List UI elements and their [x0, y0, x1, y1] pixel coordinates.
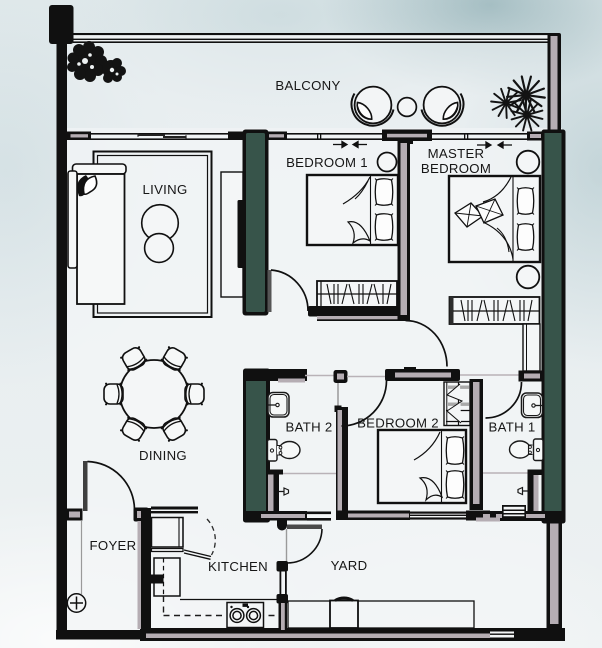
svg-text:BEDROOM 1: BEDROOM 1 — [286, 155, 368, 170]
svg-text:BALCONY: BALCONY — [275, 78, 340, 93]
svg-text:BATH 2: BATH 2 — [286, 420, 333, 435]
svg-text:BEDROOM: BEDROOM — [421, 161, 491, 176]
svg-text:MASTER: MASTER — [428, 146, 485, 161]
svg-text:DINING: DINING — [139, 448, 187, 463]
svg-text:BATH 1: BATH 1 — [489, 420, 536, 435]
svg-text:KITCHEN: KITCHEN — [208, 559, 268, 574]
svg-text:FOYER: FOYER — [90, 538, 137, 553]
svg-text:YARD: YARD — [331, 558, 368, 573]
svg-text:BEDROOM 2: BEDROOM 2 — [357, 416, 439, 431]
svg-text:LIVING: LIVING — [142, 182, 187, 197]
